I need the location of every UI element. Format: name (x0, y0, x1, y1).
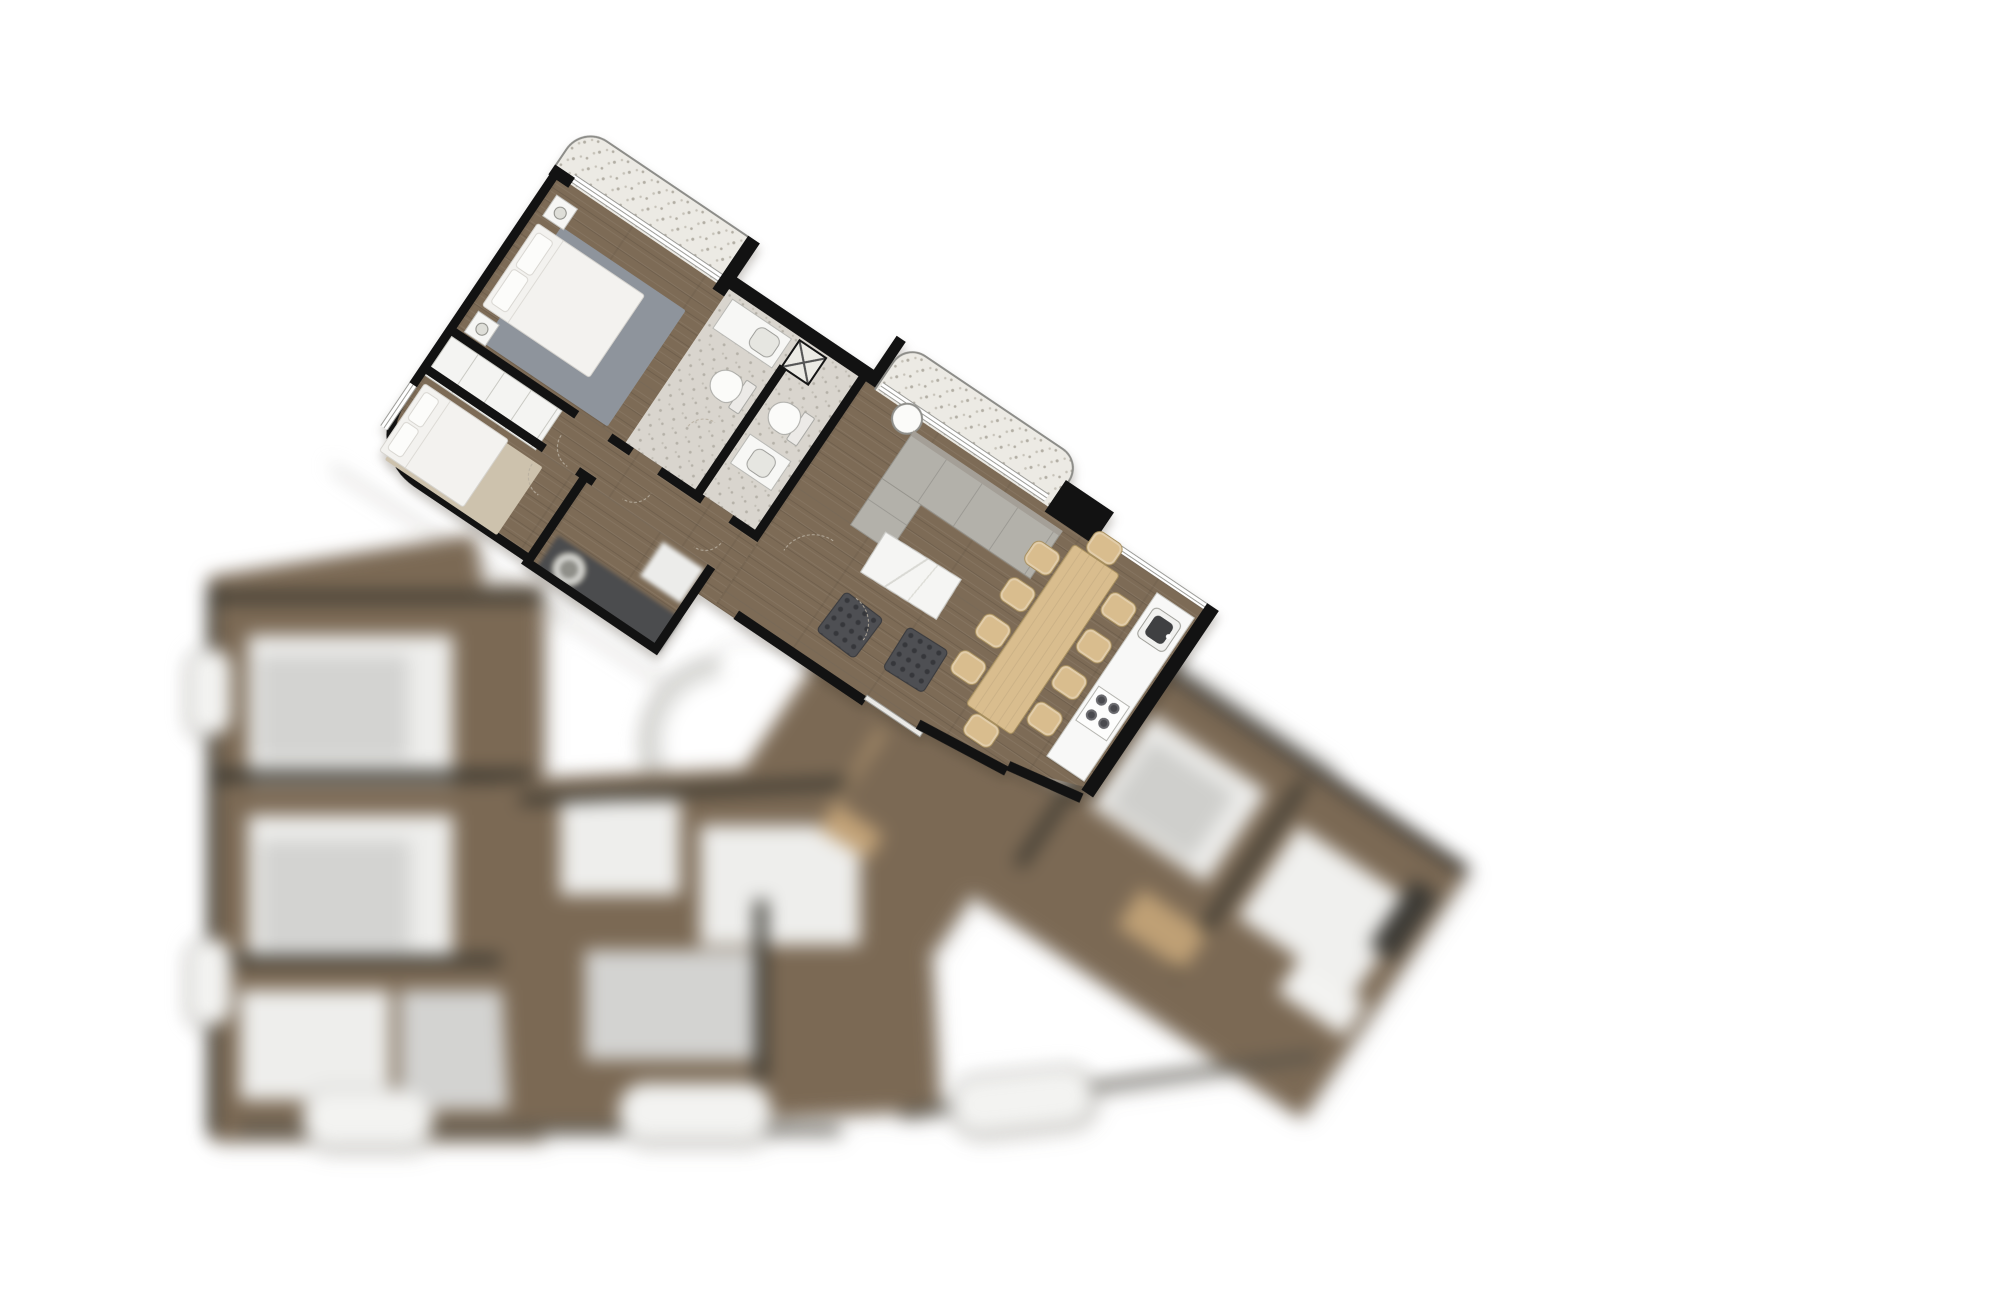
blurred-wall (213, 955, 533, 965)
blurred-room (700, 825, 860, 945)
blurred-room (1237, 826, 1415, 995)
blurred-furniture (585, 950, 765, 1060)
blurred-wall (213, 770, 533, 782)
blurred-balcony-pill (947, 1063, 1096, 1138)
floor-plan (0, 0, 2000, 1300)
blurred-side-bump (186, 648, 232, 736)
blurred-wall (213, 592, 543, 602)
burner (1084, 707, 1099, 722)
basin-bowl (743, 446, 779, 481)
blurred-side-bump (186, 938, 232, 1026)
blurred-tan-cabinet (1117, 889, 1208, 971)
blurred-room (240, 990, 390, 1100)
table-lamp (473, 320, 491, 338)
blurred-bed (260, 840, 410, 950)
blurred-wall (755, 900, 767, 1080)
blurred-bed (258, 655, 408, 760)
blurred-balcony-pill (302, 1088, 434, 1148)
table-lamp (551, 204, 569, 222)
basin-bowl (746, 324, 783, 360)
sink-basin (1143, 614, 1175, 646)
blurred-room (560, 800, 680, 895)
blurred-balcony-pill (618, 1082, 772, 1142)
burner (1094, 692, 1109, 707)
burner (1096, 716, 1111, 731)
burner (1106, 701, 1121, 716)
